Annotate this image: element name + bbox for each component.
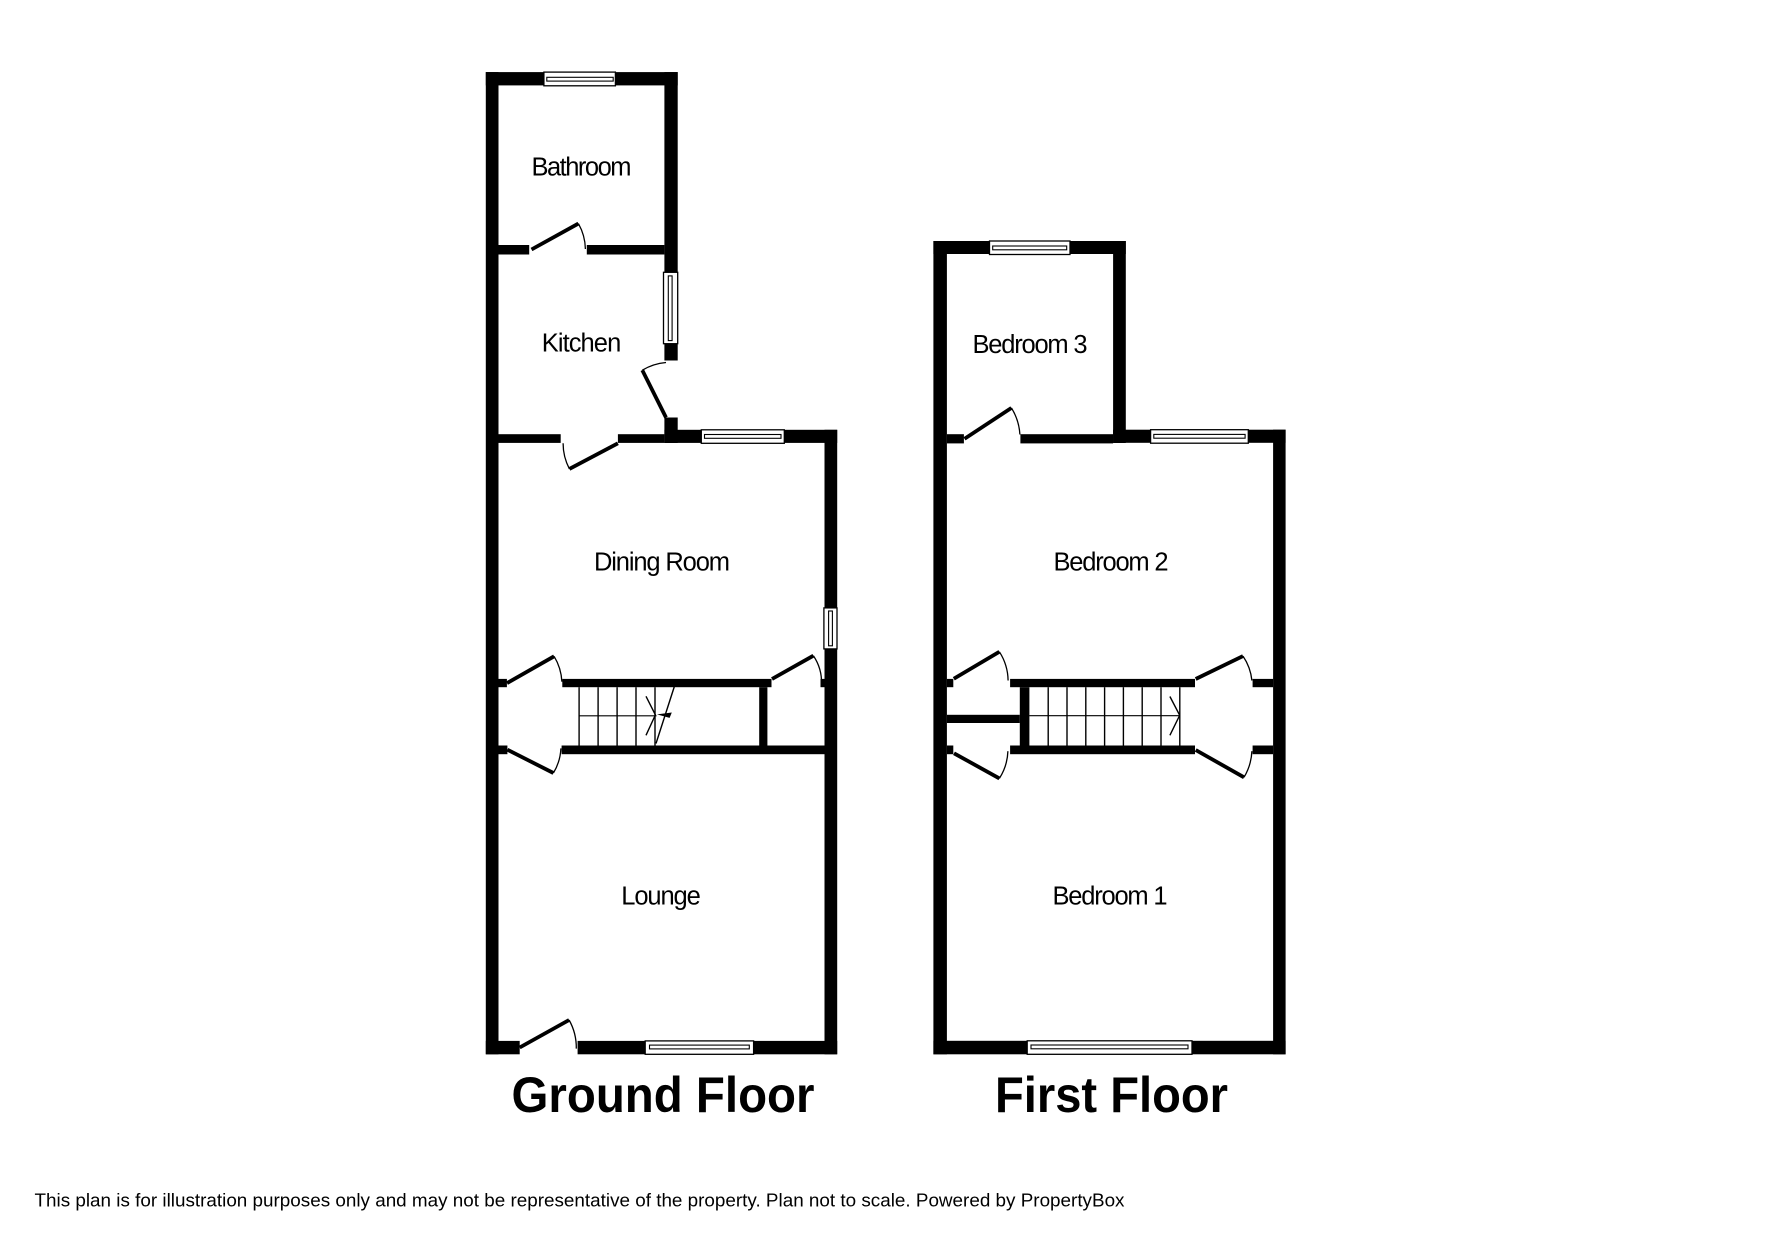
svg-text:Bedroom 3: Bedroom 3 <box>973 331 1088 359</box>
svg-text:Bathroom: Bathroom <box>532 154 632 182</box>
svg-text:Kitchen: Kitchen <box>542 330 622 358</box>
svg-text:This plan is for illustration: This plan is for illustration purposes o… <box>35 1190 1126 1211</box>
svg-text:Dining Room: Dining Room <box>594 549 730 577</box>
svg-text:Bedroom 2: Bedroom 2 <box>1054 549 1169 577</box>
svg-text:First Floor: First Floor <box>995 1067 1228 1123</box>
svg-text:Bedroom 1: Bedroom 1 <box>1053 883 1168 911</box>
svg-text:Ground Floor: Ground Floor <box>512 1067 815 1123</box>
svg-text:Lounge: Lounge <box>621 883 701 911</box>
